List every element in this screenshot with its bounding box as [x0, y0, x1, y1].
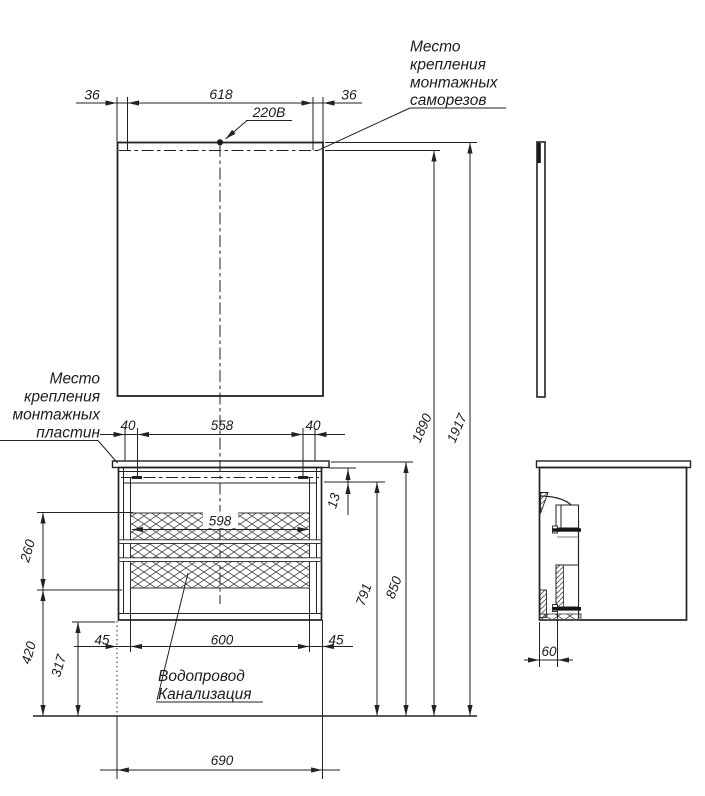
- mirror-mount-rail: [538, 143, 541, 163]
- screws-note-line2: крепления: [410, 57, 486, 74]
- dim-plate-left-offset: 40: [120, 418, 136, 433]
- dim-mirror-screw-span: 618: [209, 86, 233, 102]
- dim-plate-right-offset: 40: [305, 418, 321, 433]
- dim-mirror-top-height: 1917: [444, 411, 470, 445]
- dim-drawer-front-width: 598: [209, 514, 232, 529]
- dim-front-opening: 600: [211, 633, 234, 648]
- mirror-side-outline: [537, 142, 545, 397]
- power-callout: [226, 121, 293, 140]
- screws-note-line3: монтажных: [410, 75, 499, 92]
- dim-total-width: 690: [211, 753, 234, 768]
- wall-bracket-bottom: [540, 590, 547, 618]
- dim-mirror-right-offset: 36: [341, 87, 357, 103]
- dim-carcass-top-height: 791: [353, 581, 375, 607]
- plates-note-line3: монтажных: [13, 407, 102, 424]
- screws-note-leader: [317, 108, 410, 151]
- dim-plates-group: [100, 428, 345, 477]
- dim-front-bottom-height: 420: [18, 639, 39, 665]
- plates-note-line2: крепления: [24, 389, 100, 406]
- mirror-side-view: [537, 142, 545, 397]
- power-outlet-dot: [217, 139, 223, 145]
- dim-pipe-height: 317: [48, 652, 69, 678]
- plumbing-note-line2: Канализация: [158, 686, 252, 703]
- bottom-panel-section: [540, 614, 581, 620]
- countertop-front: [113, 461, 330, 468]
- wall-bracket-top: [541, 493, 549, 514]
- upper-drawer-slide: [553, 528, 582, 531]
- dim-front-right-margin: 45: [328, 633, 344, 648]
- dim-drawer-stack-height: 260: [17, 537, 38, 564]
- dim-top-inset: 13: [324, 491, 343, 510]
- dim-front-left-margin: 45: [94, 633, 110, 648]
- dim-plate-span: 558: [211, 418, 234, 433]
- dim-worktop-height: 850: [383, 574, 405, 601]
- plates-note: Место крепления монтажных пластин: [0, 371, 118, 464]
- plumbing-note: Водопровод Канализация: [156, 573, 263, 703]
- upper-drawer-section: [556, 505, 579, 528]
- plumbing-note-line1: Водопровод: [158, 668, 245, 685]
- power-label: 220В: [252, 104, 286, 120]
- dim-mirror-left-offset: 36: [84, 87, 100, 103]
- dim-screw-line-height: 1890: [409, 411, 435, 445]
- screws-note-line4: саморезов: [410, 92, 486, 109]
- cabinet-front-view: [113, 461, 330, 652]
- countertop-side: [537, 461, 691, 468]
- plates-note-line4: пластин: [36, 425, 100, 442]
- technical-drawing-canvas: 36 618 36 220В Место крепления монтажных…: [0, 0, 705, 796]
- plates-note-line1: Место: [50, 371, 101, 388]
- screws-note-line1: Место: [410, 39, 461, 56]
- dim-wall-offset: 60: [541, 644, 557, 659]
- cabinet-side-view: [537, 461, 691, 620]
- plates-note-leader: [98, 441, 118, 464]
- lower-drawer-slide: [553, 607, 582, 611]
- drawing-svg: 36 618 36 220В Место крепления монтажных…: [0, 0, 705, 796]
